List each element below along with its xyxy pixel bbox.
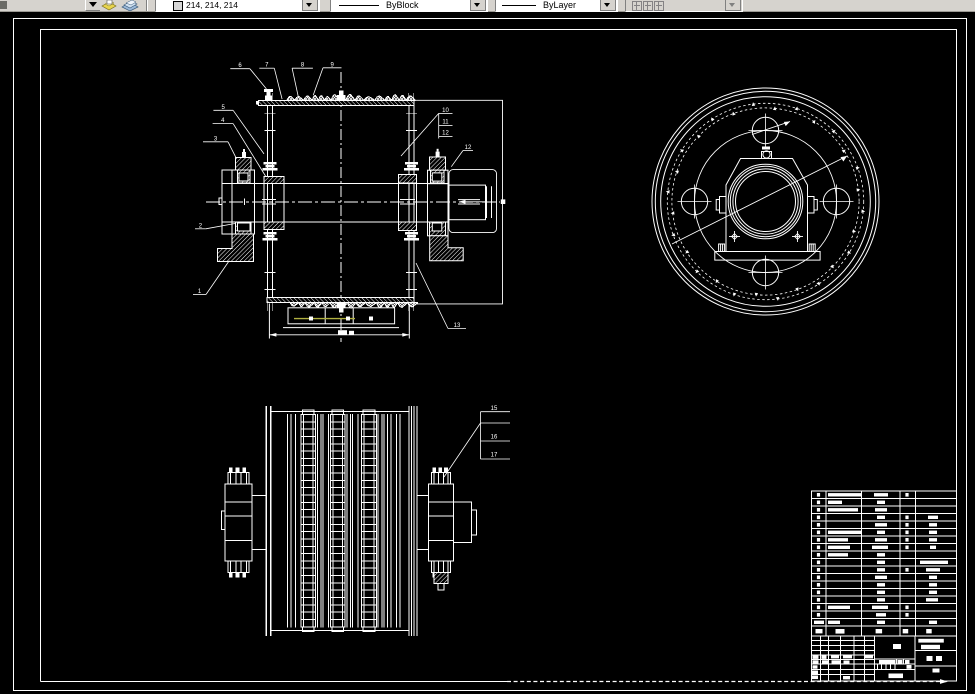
- svg-text:13: 13: [454, 323, 461, 329]
- svg-text:12: 12: [442, 131, 449, 137]
- svg-text:17: 17: [491, 453, 498, 459]
- svg-text:11: 11: [442, 120, 449, 126]
- svg-text:10: 10: [442, 108, 449, 114]
- svg-text:15: 15: [491, 406, 498, 412]
- svg-text:12: 12: [465, 145, 472, 151]
- svg-text:16: 16: [491, 435, 498, 441]
